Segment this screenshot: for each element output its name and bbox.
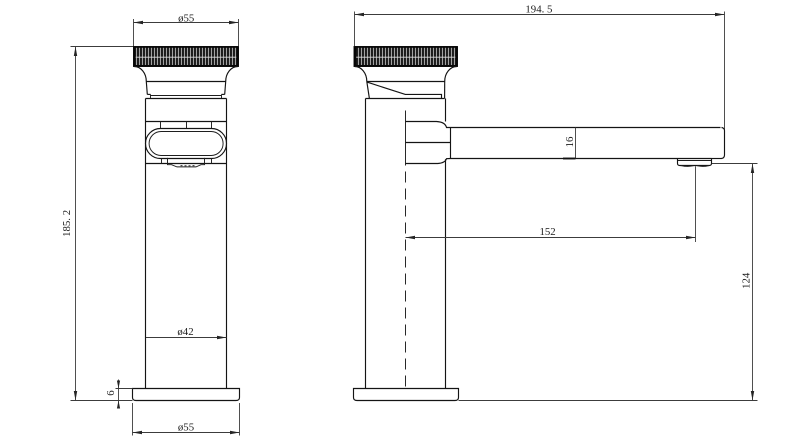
- svg-text:185. 2: 185. 2: [61, 210, 73, 237]
- svg-text:ø55: ø55: [178, 421, 194, 433]
- svg-text:6: 6: [105, 390, 117, 396]
- svg-text:16: 16: [564, 136, 576, 147]
- svg-text:ø42: ø42: [177, 326, 193, 338]
- svg-text:152: 152: [539, 226, 555, 238]
- svg-text:194. 5: 194. 5: [525, 3, 552, 15]
- svg-text:124: 124: [740, 272, 752, 289]
